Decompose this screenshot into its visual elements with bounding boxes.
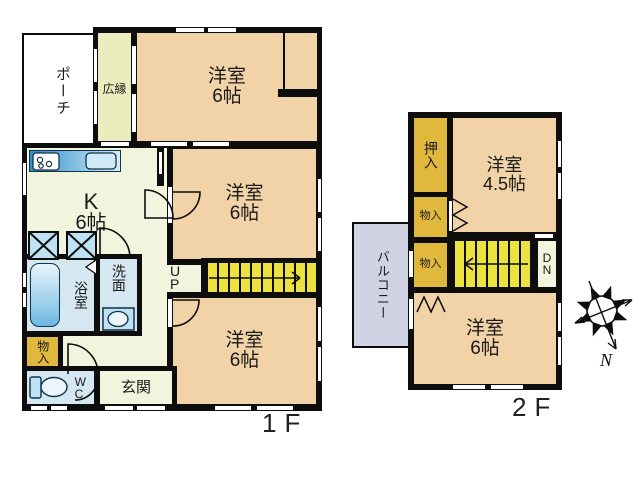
door-arc <box>75 377 98 400</box>
compass-needles <box>575 281 632 349</box>
stairs-2f-arrow <box>465 258 528 270</box>
stairs-1f-arrow <box>209 272 300 284</box>
washbasin-icon <box>103 308 134 330</box>
door-arc <box>145 190 173 218</box>
folding-door-icon <box>417 297 445 312</box>
folding-door-icon <box>453 199 467 231</box>
compass-north-label: N <box>599 350 613 370</box>
door-arc <box>68 344 98 374</box>
symbol-overlay: N <box>0 0 640 480</box>
door-arc <box>173 300 199 326</box>
door-arc <box>173 192 200 219</box>
door-swing-marker <box>86 260 96 274</box>
door-arc <box>100 228 130 258</box>
washer-box-icon <box>67 232 96 259</box>
washer-box-icon <box>29 232 58 259</box>
compass-rose: N <box>575 281 632 370</box>
stove-icon <box>33 153 59 170</box>
toilet-icon <box>30 377 67 398</box>
floor-plan-canvas: ポーチ 広縁 洋室 6帖 K 6帖 洋室 6帖 U P 洋室 6帖 浴室 <box>0 0 640 480</box>
sink-icon <box>86 153 116 169</box>
